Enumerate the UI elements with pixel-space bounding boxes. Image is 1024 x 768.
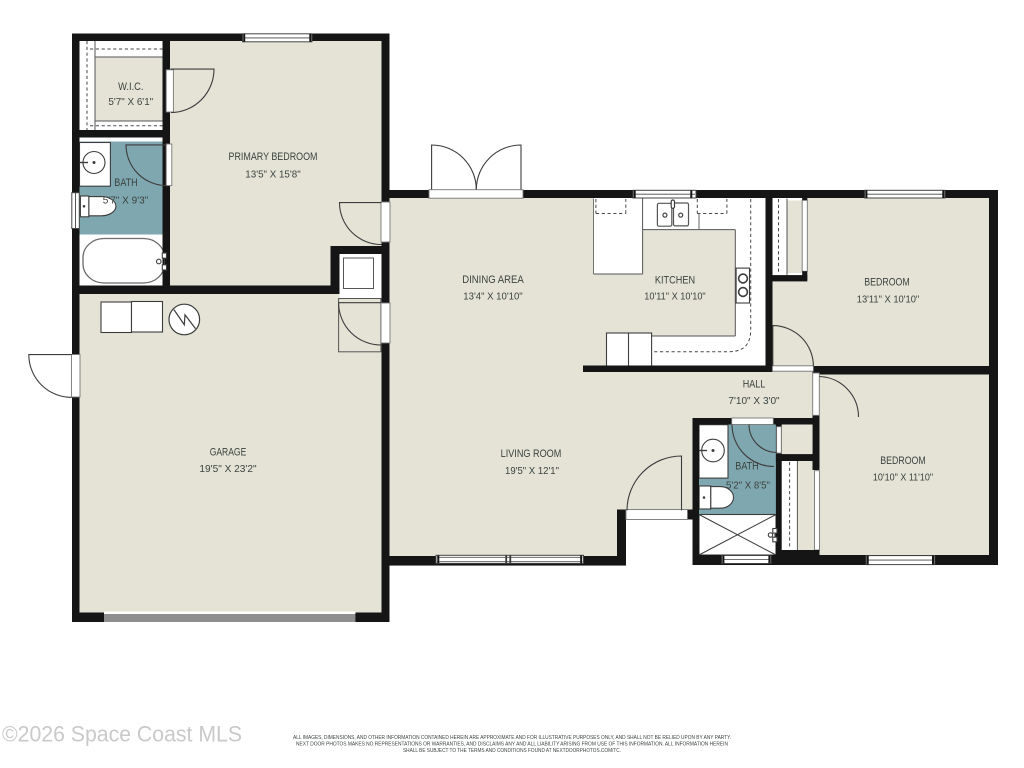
svg-text:13'4" X 10'10": 13'4" X 10'10" xyxy=(463,292,523,303)
svg-text:BATH: BATH xyxy=(735,461,758,473)
svg-text:PRIMARY BEDROOM: PRIMARY BEDROOM xyxy=(229,151,318,163)
svg-text:7'10" X 3'0": 7'10" X 3'0" xyxy=(728,396,780,407)
svg-text:19'5" X 12'1": 19'5" X 12'1" xyxy=(505,466,559,477)
svg-text:5'2" X 8'5": 5'2" X 8'5" xyxy=(726,481,770,492)
svg-text:NEXT DOOR PHOTOS MAKES NO REPR: NEXT DOOR PHOTOS MAKES NO REPRESENTATION… xyxy=(296,742,728,748)
svg-text:W.I.C.: W.I.C. xyxy=(118,81,143,93)
svg-text:19'5" X 23'2": 19'5" X 23'2" xyxy=(199,464,256,475)
svg-text:LIVING ROOM: LIVING ROOM xyxy=(501,448,562,460)
svg-text:KITCHEN: KITCHEN xyxy=(655,275,695,287)
svg-text:5'7" X 9'3": 5'7" X 9'3" xyxy=(103,196,149,207)
svg-text:13'5" X 15'8": 13'5" X 15'8" xyxy=(245,170,301,181)
svg-text:GARAGE: GARAGE xyxy=(210,447,247,459)
svg-text:BEDROOM: BEDROOM xyxy=(864,277,910,289)
svg-text:5'7" X 6'1": 5'7" X 6'1" xyxy=(108,97,153,108)
svg-text:©2026 Space Coast MLS: ©2026 Space Coast MLS xyxy=(2,722,242,747)
svg-text:SHALL BE SUBJECT TO THE TERMS: SHALL BE SUBJECT TO THE TERMS AND CONDIT… xyxy=(403,748,621,754)
svg-text:HALL: HALL xyxy=(743,379,766,391)
svg-text:DINING AREA: DINING AREA xyxy=(462,274,524,286)
svg-text:10'11" X 10'10": 10'11" X 10'10" xyxy=(644,292,706,303)
svg-text:BATH: BATH xyxy=(114,177,137,189)
svg-text:BEDROOM: BEDROOM xyxy=(880,455,926,467)
svg-text:ALL IMAGES, DIMENSIONS, AND OT: ALL IMAGES, DIMENSIONS, AND OTHER INFORM… xyxy=(293,735,731,741)
svg-text:13'11" X 10'10": 13'11" X 10'10" xyxy=(857,295,920,306)
svg-text:10'10" X 11'10": 10'10" X 11'10" xyxy=(873,473,933,484)
